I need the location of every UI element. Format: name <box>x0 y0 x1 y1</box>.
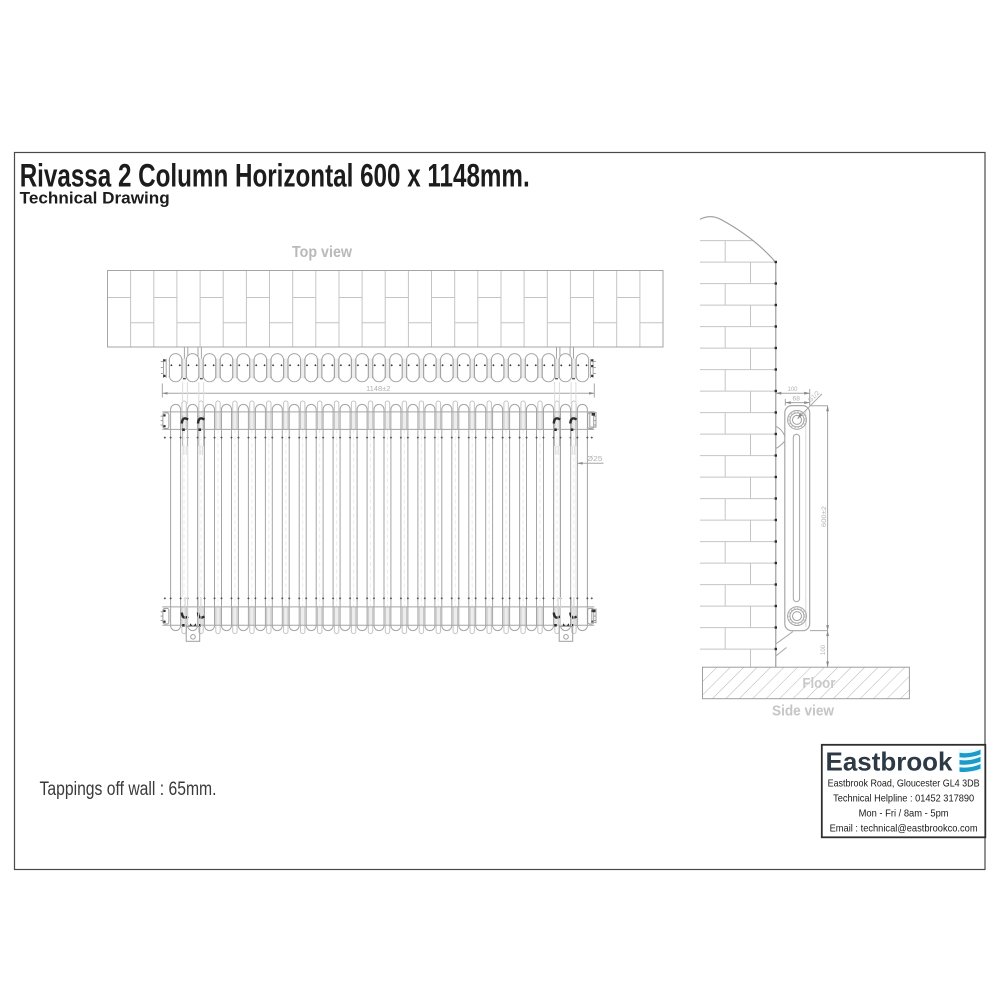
svg-text:68: 68 <box>793 396 801 403</box>
svg-text:Eastbrook: Eastbrook <box>826 747 954 777</box>
svg-text:Email : technical@eastbrookco.: Email : technical@eastbrookco.com <box>830 824 978 835</box>
svg-text:Top view: Top view <box>292 244 353 261</box>
svg-text:100: 100 <box>788 386 798 393</box>
svg-text:Technical Helpline : 01452 317: Technical Helpline : 01452 317890 <box>833 794 974 805</box>
svg-text:Technical Drawing: Technical Drawing <box>20 189 170 207</box>
svg-text:600±2: 600±2 <box>821 505 828 527</box>
svg-text:Tappings off wall : 65mm.: Tappings off wall : 65mm. <box>40 779 217 800</box>
svg-text:Mon - Fri / 8am - 5pm: Mon - Fri / 8am - 5pm <box>859 809 949 820</box>
svg-text:Side view: Side view <box>772 704 835 720</box>
svg-text:Eastbrook Road, Gloucester GL4: Eastbrook Road, Gloucester GL4 3DB <box>828 779 980 790</box>
svg-text:Rivassa 2 Column Horizontal 60: Rivassa 2 Column Horizontal 600 x 1148mm… <box>20 157 530 193</box>
svg-text:100: 100 <box>820 645 827 655</box>
svg-text:Floor: Floor <box>802 675 835 692</box>
svg-text:Ø25: Ø25 <box>587 454 603 463</box>
svg-text:1148±2: 1148±2 <box>366 384 391 393</box>
